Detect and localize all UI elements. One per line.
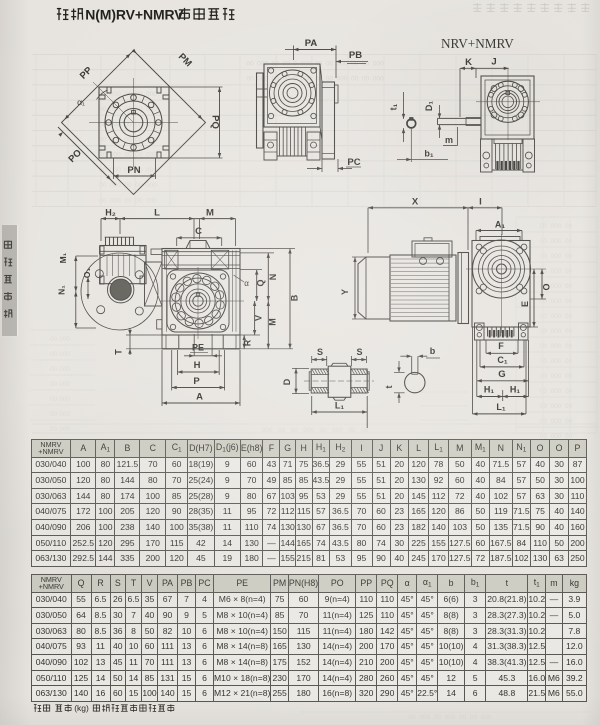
svg-text:(kg): (kg) (74, 703, 89, 713)
